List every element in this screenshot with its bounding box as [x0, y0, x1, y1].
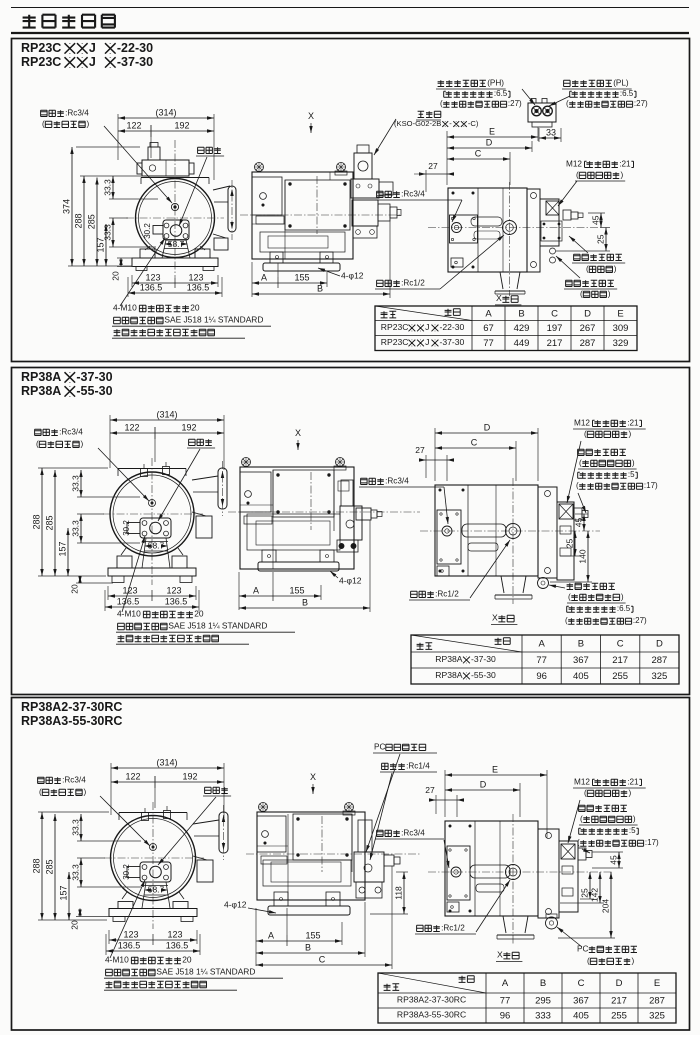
svg-text:X: X	[310, 772, 316, 782]
svg-text:136.5: 136.5	[117, 597, 140, 607]
svg-text:329: 329	[613, 338, 629, 349]
svg-text:(: (	[584, 429, 587, 438]
svg-text:140: 140	[578, 549, 588, 563]
svg-text:RP38A3-55-30RC: RP38A3-55-30RC	[21, 714, 122, 728]
svg-text:C: C	[471, 438, 478, 448]
svg-text:192: 192	[182, 772, 197, 782]
svg-text:20: 20	[182, 955, 192, 965]
svg-text:-: -	[449, 119, 452, 128]
svg-text:M12: M12	[566, 159, 582, 168]
svg-text:RP38A3-55-30RC: RP38A3-55-30RC	[397, 1010, 466, 1020]
svg-text:217: 217	[611, 996, 627, 1007]
svg-text:157: 157	[59, 885, 69, 900]
svg-text:374: 374	[62, 199, 72, 214]
svg-text:): )	[632, 956, 635, 965]
svg-text:(KSO-G02-2B: (KSO-G02-2B	[394, 119, 441, 128]
svg-text:30.2: 30.2	[122, 520, 131, 536]
svg-text:255: 255	[612, 671, 628, 682]
svg-text:): )	[621, 592, 624, 601]
svg-text:): )	[629, 788, 632, 797]
svg-text:33: 33	[546, 128, 556, 138]
svg-text:192: 192	[181, 423, 196, 433]
svg-text::Rc1/2: :Rc1/2	[441, 923, 465, 932]
svg-text:157: 157	[58, 541, 68, 556]
svg-text:155: 155	[289, 586, 304, 596]
svg-text:X: X	[497, 950, 503, 960]
svg-text:E: E	[489, 127, 495, 137]
svg-text:(314): (314)	[156, 758, 177, 768]
svg-text:27: 27	[415, 445, 425, 455]
svg-text:RP23C: RP23C	[381, 322, 409, 332]
svg-text:20: 20	[111, 271, 121, 281]
svg-text:367: 367	[573, 996, 589, 1007]
svg-text:): )	[87, 119, 90, 128]
svg-text:J: J	[89, 55, 96, 69]
svg-text:RP38A: RP38A	[21, 370, 61, 384]
svg-text::Rc3/4: :Rc3/4	[385, 476, 409, 485]
svg-text:(: (	[440, 99, 443, 108]
svg-text:123: 123	[166, 586, 181, 596]
svg-text:C: C	[551, 308, 558, 319]
svg-text:(: (	[39, 787, 42, 796]
svg-text:J: J	[425, 337, 429, 347]
svg-text:325: 325	[649, 1011, 665, 1022]
svg-text:288: 288	[74, 213, 84, 228]
svg-text:122: 122	[124, 423, 139, 433]
svg-text:204: 204	[601, 899, 611, 913]
svg-text:136.5: 136.5	[118, 941, 141, 951]
svg-text::21: :21	[619, 159, 631, 168]
svg-text:77: 77	[536, 655, 547, 666]
svg-text:RP38A2-37-30RC: RP38A2-37-30RC	[21, 700, 122, 714]
svg-text:D: D	[584, 308, 591, 319]
svg-text:4-φ12: 4-φ12	[224, 900, 247, 910]
svg-text:E: E	[617, 308, 623, 319]
svg-text:B: B	[518, 308, 524, 319]
svg-text:4-M10: 4-M10	[113, 303, 137, 313]
svg-text:M12: M12	[574, 777, 590, 786]
svg-text:287: 287	[649, 996, 665, 1007]
svg-text:(: (	[568, 592, 571, 601]
svg-text:45: 45	[574, 518, 584, 528]
svg-text:(: (	[36, 439, 39, 448]
svg-text:D: D	[480, 780, 487, 790]
svg-text:(: (	[584, 788, 587, 797]
svg-text:): )	[81, 439, 84, 448]
svg-text:RP38A: RP38A	[21, 384, 61, 398]
svg-text:33.3: 33.3	[103, 224, 113, 241]
svg-text::Rc1/2: :Rc1/2	[401, 278, 425, 287]
svg-text:4-φ12: 4-φ12	[341, 271, 364, 281]
svg-text:122: 122	[125, 772, 140, 782]
svg-text:D: D	[656, 639, 663, 650]
svg-text:25: 25	[580, 888, 590, 898]
svg-text:33.3: 33.3	[71, 520, 81, 537]
svg-text::Rc3/4: :Rc3/4	[59, 427, 83, 436]
svg-text:C: C	[578, 978, 585, 989]
svg-text:(: (	[576, 481, 579, 490]
svg-text:(: (	[580, 814, 583, 823]
svg-text:25: 25	[596, 234, 606, 244]
svg-text:(: (	[587, 956, 590, 965]
svg-text:SAE J518 1¼ STANDARD: SAE J518 1¼ STANDARD	[168, 621, 267, 631]
svg-text:-37-30: -37-30	[117, 55, 153, 69]
svg-text:RP23C: RP23C	[21, 55, 61, 69]
svg-text:136.5: 136.5	[187, 283, 210, 293]
svg-text:-55-30: -55-30	[471, 670, 496, 680]
svg-text:367: 367	[573, 655, 589, 666]
svg-text:C: C	[319, 955, 326, 965]
svg-text:PC: PC	[577, 944, 588, 953]
svg-text:136.5: 136.5	[140, 283, 163, 293]
svg-text:33.3: 33.3	[71, 864, 81, 881]
svg-text:333: 333	[535, 1011, 551, 1022]
svg-text:): )	[629, 429, 632, 438]
svg-text:30.2: 30.2	[143, 223, 152, 239]
svg-text:PC: PC	[374, 742, 385, 751]
svg-text:C: C	[475, 149, 482, 159]
svg-text:77: 77	[500, 996, 511, 1007]
svg-text:(314): (314)	[155, 108, 176, 118]
svg-text:RP38A: RP38A	[435, 654, 462, 664]
svg-text:45: 45	[591, 215, 601, 225]
svg-text:B: B	[302, 598, 308, 608]
svg-text:X: X	[308, 111, 314, 121]
svg-text:J: J	[425, 322, 429, 332]
svg-text:288: 288	[32, 858, 42, 873]
svg-text:287: 287	[651, 655, 667, 666]
svg-text:X: X	[295, 428, 301, 438]
svg-text:122: 122	[126, 121, 141, 131]
svg-text:295: 295	[535, 996, 551, 1007]
svg-text:123: 123	[122, 586, 137, 596]
svg-text:): )	[84, 787, 87, 796]
svg-text:-22-30: -22-30	[117, 41, 153, 55]
svg-text:(: (	[586, 264, 589, 273]
svg-text::Rc1/2: :Rc1/2	[435, 589, 459, 598]
svg-text:123: 123	[167, 930, 182, 940]
svg-text:33.3: 33.3	[71, 475, 81, 492]
svg-text:255: 255	[611, 1011, 627, 1022]
svg-text:X: X	[496, 293, 502, 303]
svg-text:4-M10: 4-M10	[117, 609, 141, 619]
svg-text:33.3: 33.3	[71, 819, 81, 836]
svg-text:(: (	[577, 838, 580, 847]
svg-text:77: 77	[483, 338, 494, 349]
svg-text::Rc3/4: :Rc3/4	[62, 775, 86, 784]
svg-text:): )	[614, 264, 617, 273]
svg-text:287: 287	[580, 338, 596, 349]
svg-text:SAE J518 1¼ STANDARD: SAE J518 1¼ STANDARD	[156, 967, 255, 977]
svg-text:96: 96	[536, 671, 547, 682]
svg-text:-22-30: -22-30	[440, 322, 465, 332]
svg-text:405: 405	[573, 671, 589, 682]
svg-text:-C): -C)	[468, 119, 479, 128]
svg-text:-37-30: -37-30	[471, 654, 496, 664]
svg-text:4-φ12: 4-φ12	[339, 576, 362, 586]
svg-text:A: A	[253, 586, 259, 596]
svg-text::21: :21	[627, 418, 639, 427]
svg-text:B: B	[540, 978, 546, 989]
svg-text::5: :5	[629, 826, 636, 835]
svg-text::6.5: :6.5	[620, 89, 634, 98]
svg-text:(: (	[566, 99, 569, 108]
svg-text:285: 285	[45, 515, 55, 530]
svg-text:96: 96	[500, 1011, 511, 1022]
svg-text:): )	[608, 289, 611, 298]
svg-text::6.5: :6.5	[494, 89, 508, 98]
svg-text:E: E	[492, 765, 498, 775]
svg-text:M12: M12	[574, 418, 590, 427]
svg-text:-37-30: -37-30	[440, 337, 465, 347]
svg-text::27): :27)	[633, 616, 647, 625]
svg-text:D: D	[486, 138, 493, 148]
svg-text:285: 285	[45, 859, 55, 874]
svg-text:(PH): (PH)	[487, 78, 504, 87]
svg-text:A: A	[268, 931, 274, 941]
svg-text:C: C	[617, 639, 624, 650]
svg-text:123: 123	[123, 930, 138, 940]
svg-text:429: 429	[514, 323, 530, 334]
svg-text:155: 155	[294, 273, 309, 283]
svg-text:SAE J518 1¼ STANDARD: SAE J518 1¼ STANDARD	[164, 315, 263, 325]
svg-text:20: 20	[190, 303, 200, 313]
svg-text::5: :5	[628, 470, 635, 479]
svg-text:309: 309	[613, 323, 629, 334]
svg-text:288: 288	[32, 514, 42, 529]
svg-text:): )	[633, 814, 636, 823]
svg-text:B: B	[578, 639, 584, 650]
svg-text:A: A	[485, 308, 492, 319]
svg-text:123: 123	[145, 273, 160, 283]
svg-text:27: 27	[428, 161, 438, 171]
svg-text:A: A	[261, 273, 267, 283]
svg-text:A: A	[502, 978, 509, 989]
svg-text:33.3: 33.3	[103, 179, 113, 196]
svg-text:D: D	[616, 978, 623, 989]
svg-text:J: J	[89, 41, 96, 55]
svg-text:285: 285	[87, 214, 97, 229]
svg-text:136.5: 136.5	[165, 597, 188, 607]
svg-text:(: (	[576, 170, 579, 179]
svg-text:E: E	[654, 978, 660, 989]
svg-text::Rc1/4: :Rc1/4	[406, 761, 430, 770]
svg-text:): )	[632, 458, 635, 467]
svg-text:449: 449	[514, 338, 530, 349]
svg-text:67: 67	[483, 323, 494, 334]
svg-text:RP38A: RP38A	[435, 670, 462, 680]
svg-text:(: (	[580, 289, 583, 298]
svg-text:(PL): (PL)	[613, 78, 629, 87]
svg-text:405: 405	[573, 1011, 589, 1022]
svg-text:20: 20	[70, 584, 80, 594]
svg-text:118: 118	[394, 886, 404, 900]
svg-text:30.2: 30.2	[122, 864, 131, 880]
svg-text:(: (	[42, 119, 45, 128]
svg-text:X: X	[492, 613, 498, 623]
svg-text::27): :27)	[508, 99, 522, 108]
svg-text:A: A	[538, 639, 545, 650]
svg-text:20: 20	[194, 609, 204, 619]
svg-text:20: 20	[70, 920, 80, 930]
svg-text:): )	[621, 170, 624, 179]
svg-text::Rc3/4: :Rc3/4	[401, 189, 425, 198]
svg-text:197: 197	[547, 323, 563, 334]
svg-text:192: 192	[174, 121, 189, 131]
svg-text::27): :27)	[634, 99, 648, 108]
svg-text:155: 155	[305, 931, 320, 941]
svg-text::Rc3/4: :Rc3/4	[401, 828, 425, 837]
svg-text:D: D	[484, 423, 491, 433]
svg-text:(: (	[565, 616, 568, 625]
svg-text::6.5: :6.5	[617, 604, 631, 613]
svg-text::17): :17)	[645, 838, 659, 847]
svg-text:325: 325	[651, 671, 667, 682]
svg-text:45: 45	[609, 855, 619, 865]
svg-text:B: B	[317, 284, 323, 294]
svg-text::Rc3/4: :Rc3/4	[65, 108, 89, 117]
svg-text:(314): (314)	[156, 410, 177, 420]
svg-text:27: 27	[425, 785, 435, 795]
svg-text:(: (	[579, 458, 582, 467]
svg-text:RP23C: RP23C	[381, 337, 409, 347]
svg-text:-55-30: -55-30	[76, 384, 112, 398]
svg-text:267: 267	[580, 323, 596, 334]
svg-text:4-M10: 4-M10	[105, 955, 129, 965]
svg-text:136.5: 136.5	[166, 941, 189, 951]
svg-text:B: B	[305, 943, 311, 953]
svg-text:RP38A2-37-30RC: RP38A2-37-30RC	[397, 995, 466, 1005]
svg-text:142: 142	[590, 888, 600, 902]
svg-text::21: :21	[627, 777, 639, 786]
svg-text:-37-30: -37-30	[76, 370, 112, 384]
svg-text:217: 217	[612, 655, 628, 666]
svg-text:217: 217	[547, 338, 563, 349]
svg-text:123: 123	[188, 273, 203, 283]
svg-text:25: 25	[565, 539, 575, 549]
svg-text:RP23C: RP23C	[21, 41, 61, 55]
svg-text::17): :17)	[644, 481, 658, 490]
